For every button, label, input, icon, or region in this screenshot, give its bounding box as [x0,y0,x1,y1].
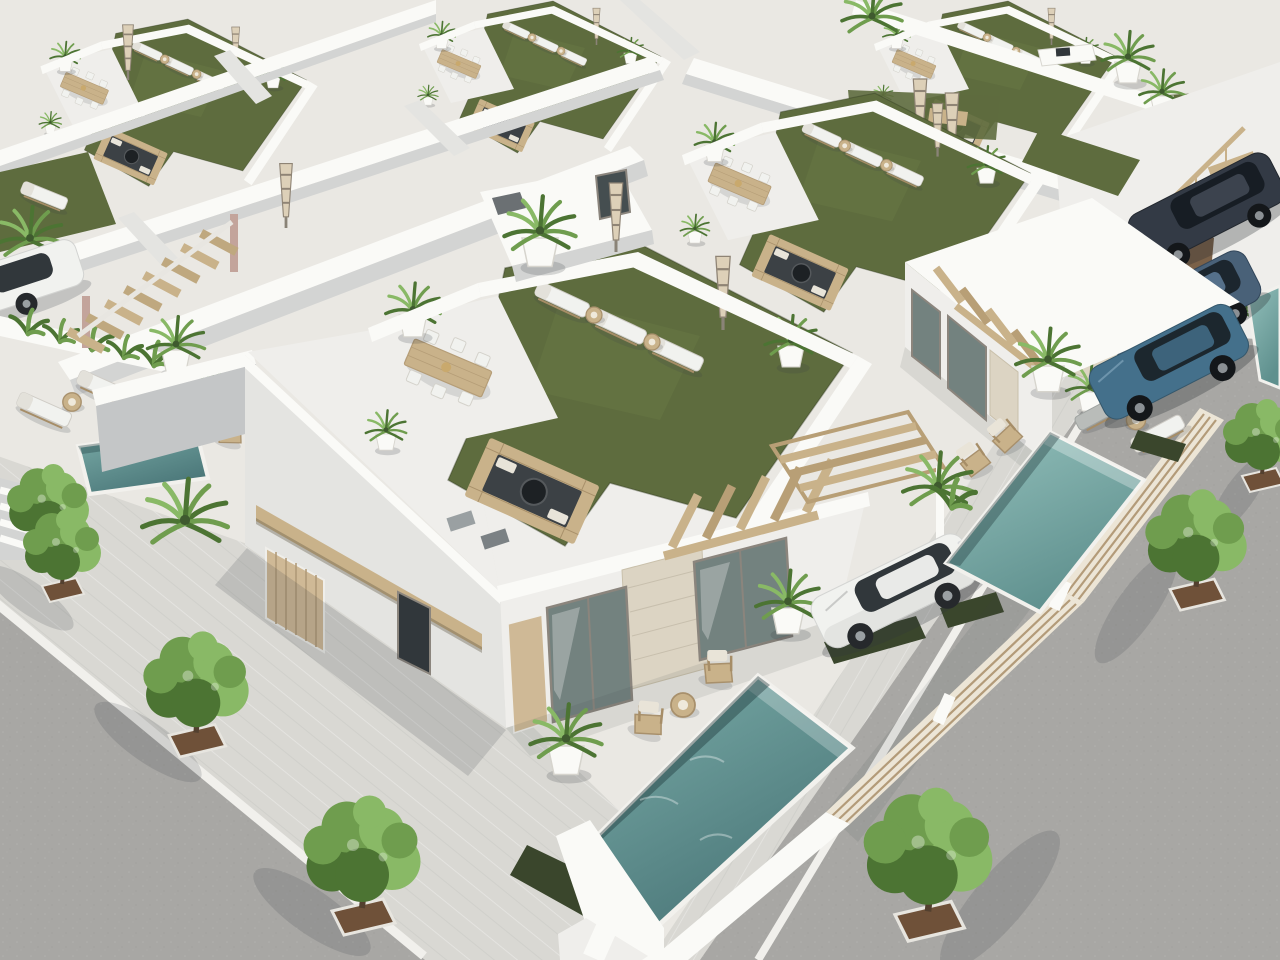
render-viewport: Aerial 3D architectural rendering of a n… [0,0,1280,960]
villa-development-render [0,0,1280,960]
entry-door-slats [508,615,548,733]
